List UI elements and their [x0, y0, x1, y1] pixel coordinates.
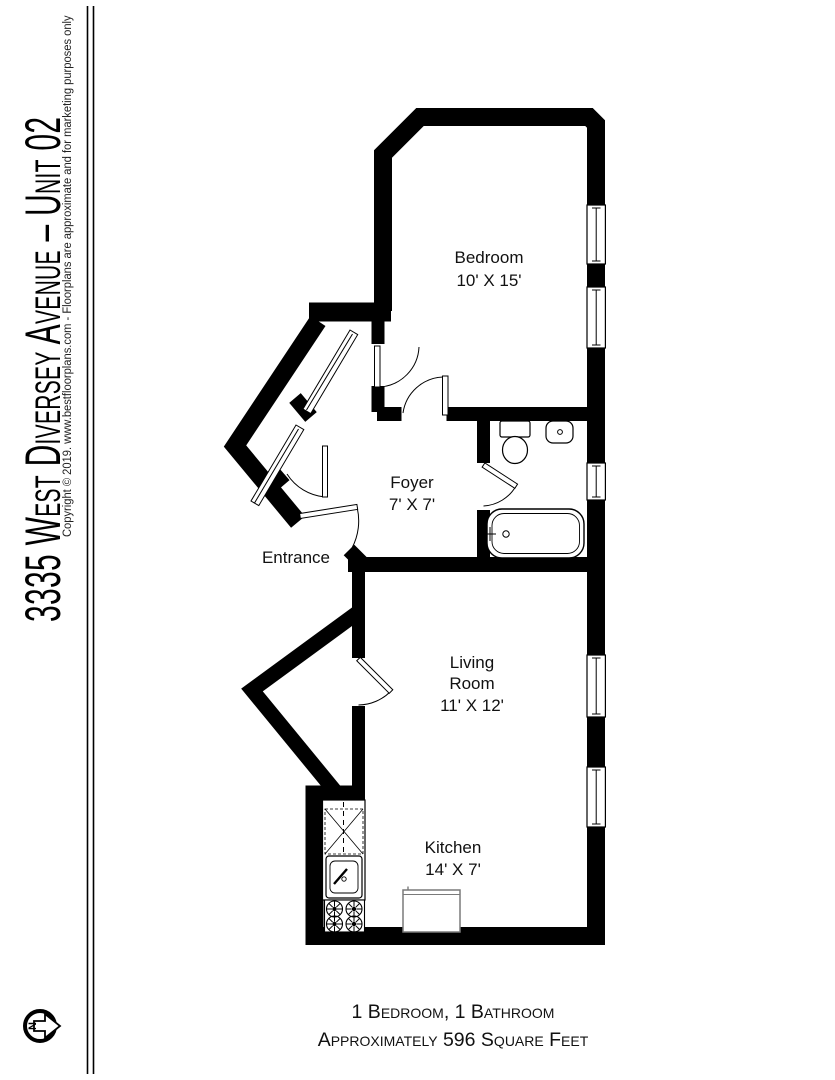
bathtub-icon [485, 509, 584, 558]
bathroom-door [482, 463, 517, 506]
bedroom-dims: 10' X 15' [456, 271, 521, 290]
window [587, 655, 605, 717]
kitchen-dims: 14' X 7' [425, 860, 481, 879]
divider-double-rule [88, 6, 94, 1074]
floor-plan-drawing: Bedroom 10' X 15' Foyer 7' X 7' Entrance… [0, 0, 835, 1080]
front-closet-door [287, 446, 328, 497]
living-room-door [357, 657, 393, 705]
north-label: N [27, 1022, 39, 1030]
summary-line1: 1 Bedroom, 1 Bathroom [133, 999, 773, 1027]
entrance-door [300, 504, 359, 548]
foyer-dims: 7' X 7' [389, 495, 435, 514]
bathroom-fixtures [485, 415, 584, 558]
window [587, 767, 605, 827]
bedroom-label: Bedroom [455, 248, 524, 267]
window [587, 463, 605, 500]
living-room-label-line1: Living [450, 653, 494, 672]
entrance-label: Entrance [262, 548, 330, 567]
north-arrow-icon: N [25, 1011, 60, 1041]
summary-line2: Approximately 596 Square Feet [133, 1027, 773, 1055]
stove-icon [325, 900, 365, 932]
toilet-icon [500, 421, 530, 464]
bedroom-closet-door [375, 346, 420, 387]
bedroom-door [403, 376, 448, 415]
refrigerator-icon [403, 887, 460, 933]
foyer-label: Foyer [390, 473, 434, 492]
window [587, 205, 605, 264]
kitchen-sink-icon [326, 856, 362, 898]
floor-plan-page: 3335 West Diversey Avenue – Unit 02 Copy… [0, 0, 835, 1080]
kitchen-label: Kitchen [425, 838, 482, 857]
window [587, 287, 605, 348]
living-room-label-line2: Room [449, 674, 494, 693]
living-room-dims: 11' X 12' [440, 696, 504, 715]
summary-caption: 1 Bedroom, 1 Bathroom Approximately 596 … [133, 999, 773, 1054]
